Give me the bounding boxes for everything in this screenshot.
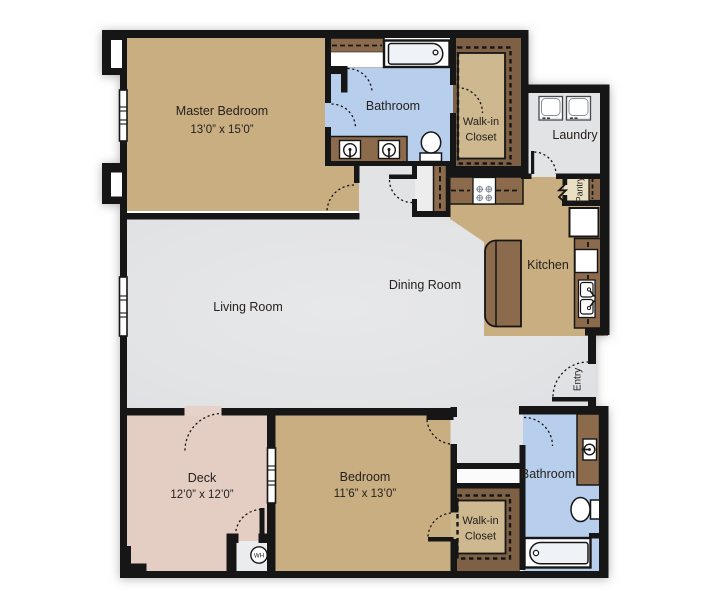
svg-text:WH: WH [254,553,264,560]
svg-text:Closet: Closet [465,531,496,543]
svg-text:Pantry: Pantry [575,176,585,202]
svg-text:Kitchen: Kitchen [527,258,569,272]
svg-text:Laundry: Laundry [552,128,598,142]
svg-text:Bathroom: Bathroom [366,99,420,113]
svg-text:Deck: Deck [188,471,217,485]
svg-text:Walk-in: Walk-in [462,515,498,527]
svg-text:Bedroom: Bedroom [340,470,391,484]
svg-text:11’6” x 13’0”: 11’6” x 13’0” [334,488,397,500]
svg-text:Master Bedroom: Master Bedroom [176,104,268,118]
svg-text:Living Room: Living Room [213,300,282,314]
svg-text:Closet: Closet [465,132,496,144]
svg-text:13’0” x 15’0”: 13’0” x 15’0” [190,124,253,136]
svg-text:Entry: Entry [573,368,584,391]
svg-text:12’0” x 12’0”: 12’0” x 12’0” [170,489,233,501]
svg-text:Dining Room: Dining Room [389,278,461,292]
svg-text:Bathroom: Bathroom [521,467,575,481]
svg-text:Walk-in: Walk-in [463,116,499,128]
